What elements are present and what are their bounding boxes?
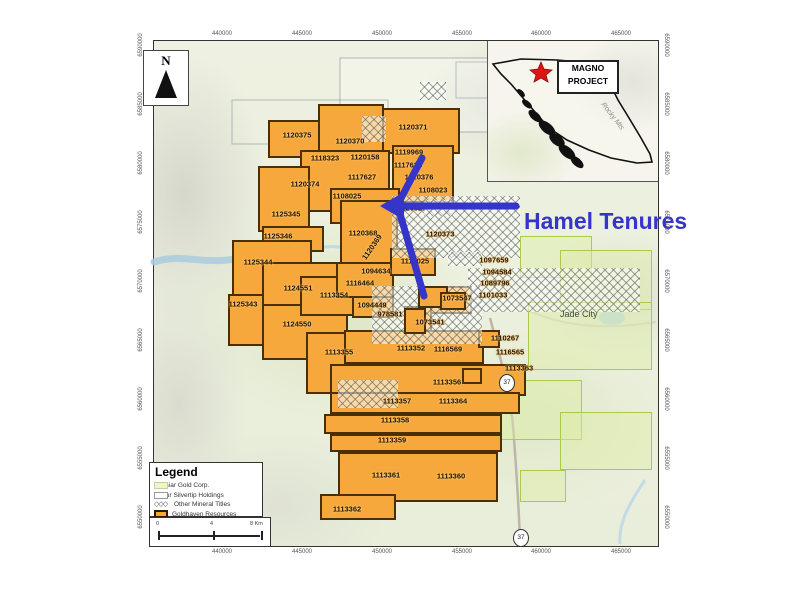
x-tick-label: 445000 — [292, 549, 312, 555]
y-tick-label: 6580000 — [663, 151, 669, 174]
y-tick-label: 6565000 — [663, 328, 669, 351]
other-swatch-icon: ◇◇◇ — [154, 501, 170, 508]
y-tick-label: 6570000 — [663, 269, 669, 292]
legend-item: ◇◇◇Other Mineral Titles — [154, 500, 258, 510]
tenure-label: 978581 — [377, 310, 402, 319]
tenure-label: 1116569 — [434, 345, 462, 354]
x-tick-label: 460000 — [531, 549, 551, 555]
magno-project-label: MAGNO PROJECT — [557, 60, 619, 94]
tenure-label: 1124551 — [284, 284, 313, 293]
scale-label: 0 — [156, 521, 159, 527]
x-tick-label: 450000 — [372, 549, 392, 555]
tenure-label: 1113352 — [397, 344, 425, 353]
x-tick-label: 455000 — [452, 549, 472, 555]
tenure-label: 1117628 — [394, 161, 422, 170]
other-mineral-titles-patch — [420, 82, 446, 100]
x-tick-label: 465000 — [611, 31, 631, 37]
tenure-label: 1116464 — [346, 279, 374, 288]
tenure-label: 1113359 — [378, 436, 406, 445]
y-tick-label: 6560000 — [138, 387, 144, 410]
tenure-label: 1113364 — [439, 397, 467, 406]
legend-title: Legend — [155, 465, 258, 479]
tenure-label: 1113358 — [381, 416, 409, 425]
y-tick-label: 6575000 — [663, 210, 669, 233]
y-tick-label: 6590000 — [138, 33, 144, 56]
legend-item: Cassiar Gold Corp. — [154, 481, 258, 491]
tenure-label: 1108023 — [419, 186, 448, 195]
scale-label: 8 Km — [250, 521, 263, 527]
tenure-label: 1113362 — [333, 505, 361, 514]
y-tick-label: 6555000 — [663, 446, 669, 469]
x-tick-label: 450000 — [372, 31, 392, 37]
tenure-label: 1120370 — [336, 137, 365, 146]
north-label: N — [144, 53, 188, 69]
tenure-label: 1113356 — [433, 378, 461, 387]
y-tick-label: 6555000 — [138, 446, 144, 469]
tenure-label: 1120158 — [351, 153, 380, 162]
tenure-label: 1110267 — [491, 334, 519, 343]
claim-block — [462, 368, 482, 384]
legend-items: Cassiar Gold Corp.Coeur Silvertip Holdin… — [154, 481, 258, 519]
other-mineral-titles-patch — [424, 200, 452, 216]
x-tick-label: 455000 — [452, 31, 472, 37]
y-tick-label: 6550000 — [663, 505, 669, 528]
north-arrow: N — [143, 50, 189, 106]
tenure-label: 1117627 — [348, 173, 376, 182]
tenure-label: 1097659 — [479, 256, 508, 265]
tenure-label: 1119969 — [395, 148, 423, 157]
scale-bar: 048 Km — [149, 517, 271, 547]
tenure-label: 1116565 — [496, 348, 524, 357]
tenure-label: 1120627 — [398, 204, 427, 213]
inset-map: MAGNO PROJECT Rocky Mts — [487, 41, 658, 182]
x-tick-label: 445000 — [292, 31, 312, 37]
y-tick-label: 6570000 — [138, 269, 144, 292]
highway-shield: 37 — [499, 374, 515, 392]
y-tick-label: 6550000 — [138, 505, 144, 528]
legend: Legend Cassiar Gold Corp.Coeur Silvertip… — [149, 462, 263, 517]
tenure-label: 1073547 — [442, 294, 471, 303]
tenure-label: 1120374 — [291, 180, 320, 189]
tenure-label: 1113361 — [372, 471, 400, 480]
other-mineral-titles-patch — [448, 252, 482, 266]
tenure-label: 1117025 — [401, 257, 429, 266]
tenure-label: 1125343 — [229, 300, 258, 309]
tenure-label: 1089796 — [480, 279, 509, 288]
y-tick-label: 6580000 — [138, 151, 144, 174]
north-arrow-icon — [155, 70, 177, 98]
tenure-label: 1113357 — [383, 397, 411, 406]
x-tick-label: 440000 — [212, 549, 232, 555]
place-label-jade-city: Jade City — [560, 309, 598, 319]
tenure-label: 1118323 — [311, 154, 339, 163]
x-tick-label: 440000 — [212, 31, 232, 37]
claim-block — [258, 166, 310, 232]
y-tick-label: 6585000 — [663, 92, 669, 115]
y-tick-label: 6575000 — [138, 210, 144, 233]
tenure-label: 1101033 — [479, 291, 508, 300]
tenure-label: 1113360 — [437, 472, 465, 481]
legend-item-label: Other Mineral Titles — [174, 501, 230, 508]
tenure-label: 1120376 — [405, 173, 434, 182]
tenure-label: 1124550 — [283, 320, 312, 329]
claim-block — [324, 414, 502, 434]
tenure-label: 1113354 — [320, 291, 348, 300]
tenure-label: 1125344 — [244, 258, 273, 267]
tenure-label: 1120375 — [283, 131, 312, 140]
tenure-label: 1094634 — [361, 267, 390, 276]
tenure-label: 1125345 — [272, 210, 301, 219]
y-tick-label: 6560000 — [663, 387, 669, 410]
x-tick-label: 465000 — [611, 549, 631, 555]
legend-item: Coeur Silvertip Holdings — [154, 491, 258, 501]
map-figure: { "map": { "annotation": "Hamel Tenures"… — [0, 0, 800, 600]
magno-line1: MAGNO — [559, 62, 617, 75]
tenure-label: 1113355 — [325, 348, 353, 357]
x-tick-label: 460000 — [531, 31, 551, 37]
claim-block — [330, 434, 502, 452]
tenure-label: 1113363 — [505, 364, 533, 373]
highway-shield: 37 — [513, 529, 529, 547]
cassiar-polygon — [520, 470, 566, 502]
tenure-label: 1120373 — [426, 230, 455, 239]
other-mineral-titles-patch — [362, 116, 386, 142]
y-tick-label: 6590000 — [663, 33, 669, 56]
tenure-label: 1125346 — [264, 232, 293, 241]
scale-bar-line — [158, 535, 260, 537]
tenure-label: 1094584 — [482, 268, 511, 277]
magno-line2: PROJECT — [559, 75, 617, 88]
coeur-swatch-icon — [154, 492, 168, 499]
cassiar-polygon — [560, 412, 652, 470]
y-tick-label: 6565000 — [138, 328, 144, 351]
tenure-label: 1094449 — [357, 301, 386, 310]
y-tick-label: 6585000 — [138, 92, 144, 115]
scale-label: 4 — [210, 521, 213, 527]
tenure-label: 1108025 — [333, 192, 362, 201]
tenure-label: 1073541 — [415, 318, 444, 327]
cassiar-swatch-icon — [154, 482, 168, 489]
scale-bar-labels: 048 Km — [150, 518, 270, 528]
tenure-label: 1120371 — [399, 123, 428, 132]
